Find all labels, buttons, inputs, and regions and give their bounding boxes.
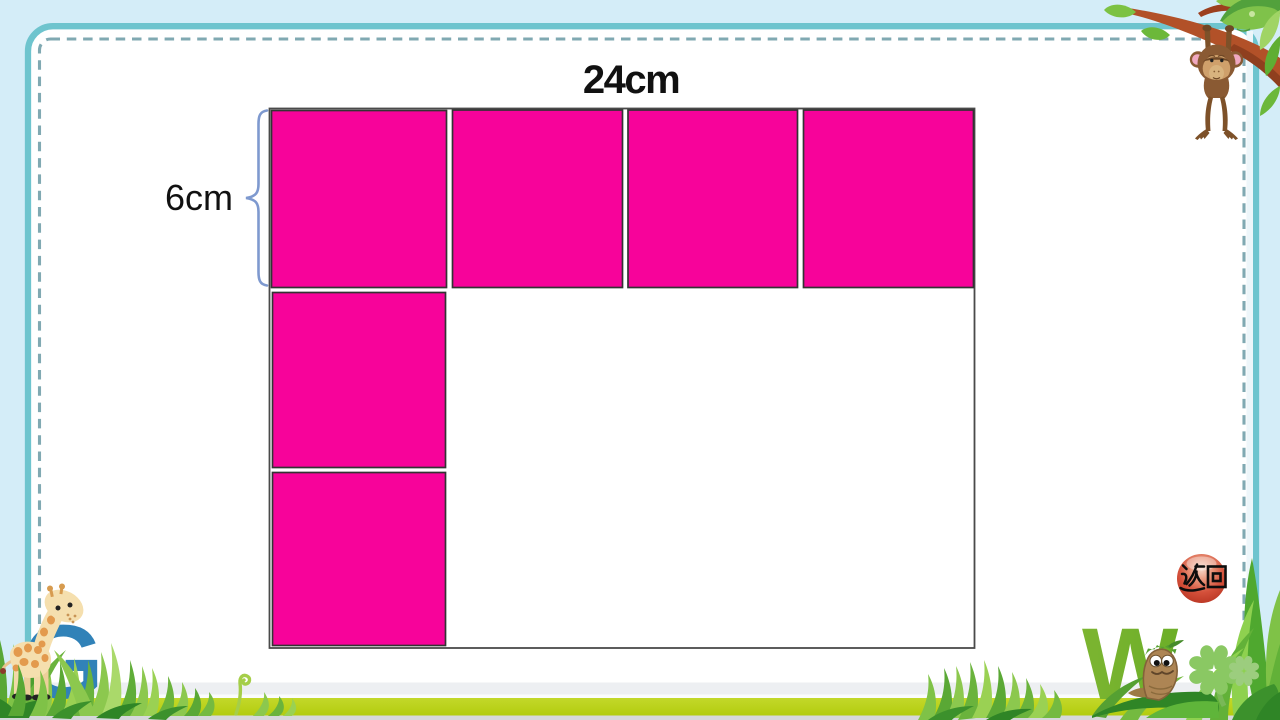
- svg-text:24cm: 24cm: [583, 58, 679, 102]
- svg-text:6cm: 6cm: [165, 177, 233, 218]
